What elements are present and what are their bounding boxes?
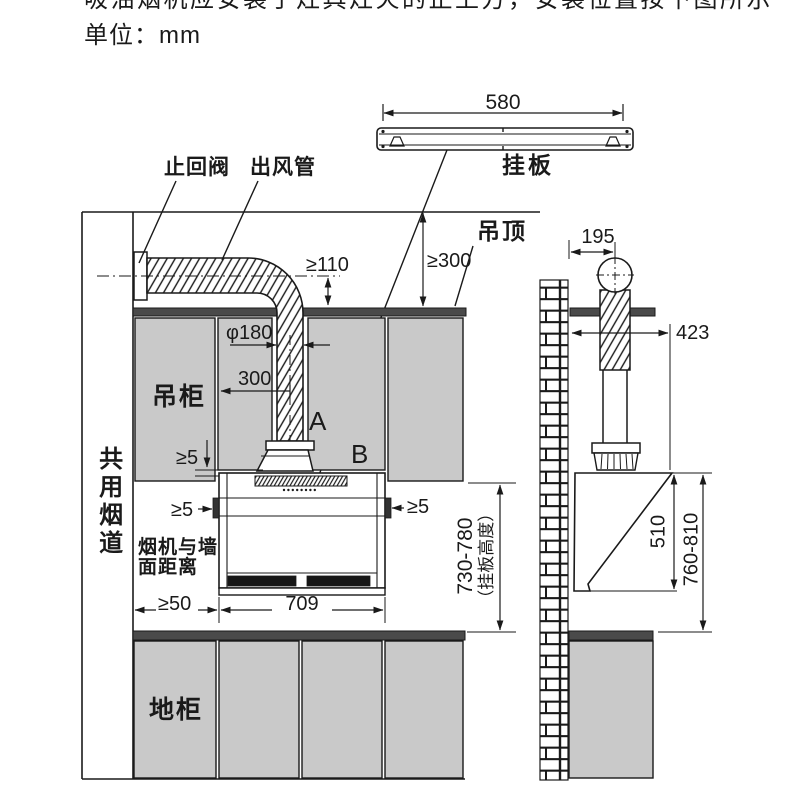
floor-cabinet-label: 地柜 <box>149 696 203 725</box>
shared-flue-label: 共用烟道 <box>94 446 122 558</box>
floor-cabinet-side <box>569 641 653 778</box>
dim-duct-to-ceiling-label: ≥110 <box>306 254 349 277</box>
grease-filter-right <box>307 576 370 586</box>
dim-hood-width-label: 709 <box>270 593 334 616</box>
dim-right-gap-label: ≥5 <box>407 496 429 519</box>
hood-wall-distance-line1: 烟机与墙 <box>138 537 218 559</box>
countertop-front <box>133 631 465 640</box>
dim-duct-offset-label: 300 <box>238 368 271 391</box>
installation-diagram-page: 吸油烟机应安装于灶具灶火的正上方，安装位置按下图所示 单位：mm 580 挂板 … <box>0 0 790 785</box>
outlet-pipe-label: 出风管 <box>250 156 316 180</box>
dim-hood-height-label: 510 <box>648 502 671 562</box>
grease-filter-left <box>228 576 296 586</box>
mount-tab-left <box>213 498 219 518</box>
check-valve-leader <box>139 181 176 263</box>
dim-wall-to-duct-label: 195 <box>575 226 621 249</box>
ceiling-label: 吊顶 <box>477 218 527 244</box>
dim-hood-to-counter-label: 760-810 <box>681 495 704 605</box>
brick-wall <box>540 280 568 780</box>
page-title-clipped: 吸油烟机应安装于灶具灶火的正上方，安装位置按下图所示 <box>84 0 773 14</box>
hood-front-view <box>213 473 391 595</box>
dim-top-gap-label: ≥5 <box>176 447 198 470</box>
countertop-side <box>569 631 653 640</box>
mount-tab-right <box>385 498 391 518</box>
hanging-plate-mounted <box>255 476 347 486</box>
flex-duct-side <box>600 290 630 370</box>
duct-boot-side <box>594 453 638 470</box>
dim-ceiling-height-label: ≥300 <box>427 250 471 273</box>
duct-flange <box>266 441 314 450</box>
hanging-plate-label: 挂板 <box>502 152 554 178</box>
dim-flue-clearance-label: ≥50 <box>158 593 191 616</box>
hood-wall-distance-line2: 面距离 <box>138 557 198 579</box>
wall-cabinet-label: 吊柜 <box>152 383 206 412</box>
duct-flange-side <box>592 443 640 453</box>
dim-left-gap-label: ≥5 <box>171 499 193 522</box>
point-a-label: A <box>309 407 326 437</box>
dim-plate-width-label: 580 <box>470 91 536 115</box>
dim-plate-height-note: （挂板高度） <box>477 486 497 626</box>
unit-note: 单位：mm <box>84 22 201 50</box>
dim-plate-height-label: 730-780 <box>454 496 478 616</box>
outlet-pipe-leader <box>222 181 258 260</box>
point-b-label: B <box>351 440 368 470</box>
installation-diagram <box>0 0 790 785</box>
dim-duct-diameter-label: φ180 <box>226 322 272 345</box>
dim-wall-to-front-label: 423 <box>676 322 709 345</box>
check-valve-label: 止回阀 <box>164 156 230 180</box>
